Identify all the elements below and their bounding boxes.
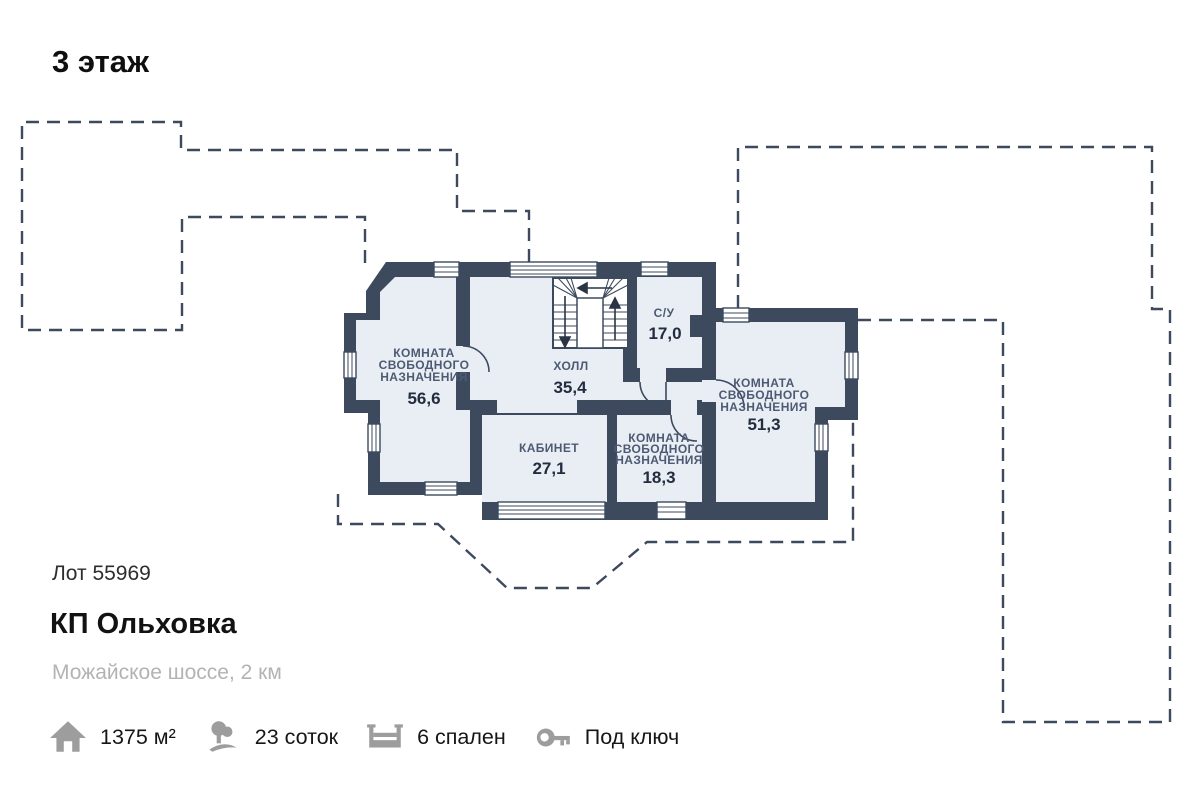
development-name: КП Ольховка — [50, 608, 237, 641]
opening-hall-cabinet — [497, 400, 577, 413]
lot-number: Лот 55969 — [52, 562, 151, 586]
stat-label: 23 соток — [255, 725, 338, 750]
stat-label: 6 спален — [417, 725, 506, 750]
page-title: 3 этаж — [52, 44, 149, 80]
hall-label: ХОЛЛ — [553, 359, 588, 373]
window — [657, 502, 686, 519]
room-bottom-area: 18,3 — [642, 468, 675, 487]
bathroom-pilaster — [690, 315, 702, 337]
window — [425, 482, 457, 495]
stat-label: 1375 м² — [100, 725, 176, 750]
location-text: Можайское шоссе, 2 км — [52, 661, 282, 685]
window — [368, 424, 380, 452]
staircase — [553, 278, 628, 348]
stat-finish: Под ключ — [533, 717, 680, 757]
opening-room-right — [702, 380, 716, 402]
stat-house-area: 1375 м² — [48, 717, 176, 757]
stat-bedrooms: 6 спален — [365, 717, 506, 757]
window — [723, 308, 749, 322]
bed-icon — [365, 717, 405, 757]
room-left-area: 56,6 — [407, 389, 440, 408]
svg-text:НАЗНАЧЕНИЯ: НАЗНАЧЕНИЯ — [615, 453, 703, 467]
window — [434, 262, 459, 277]
trees-icon — [203, 717, 243, 757]
key-icon — [533, 717, 573, 757]
window — [498, 502, 605, 519]
house-icon — [48, 717, 88, 757]
hall-area: 35,4 — [553, 378, 587, 397]
room-right-area: 51,3 — [747, 415, 780, 434]
opening-bathroom — [640, 368, 666, 382]
floorplan-page: КОМНАТА СВОБОДНОГО НАЗНАЧЕНИЯ 56,6 ХОЛЛ … — [0, 0, 1200, 799]
window — [815, 424, 828, 451]
cabinet-area: 27,1 — [532, 459, 565, 478]
window — [344, 352, 356, 378]
svg-text:НАЗНАЧЕНИЯ: НАЗНАЧЕНИЯ — [380, 370, 468, 384]
stat-land-area: 23 соток — [203, 717, 338, 757]
opening-room-bottom — [671, 400, 697, 415]
property-stats: 1375 м² 23 соток — [48, 717, 706, 757]
window — [845, 352, 858, 379]
svg-text:НАЗНАЧЕНИЯ: НАЗНАЧЕНИЯ — [720, 400, 808, 414]
window — [641, 262, 668, 276]
window — [510, 262, 597, 277]
stat-label: Под ключ — [585, 725, 680, 750]
cabinet-label: КАБИНЕТ — [519, 441, 579, 455]
bathroom-label: С/У — [654, 306, 675, 320]
bathroom-area: 17,0 — [648, 324, 681, 343]
